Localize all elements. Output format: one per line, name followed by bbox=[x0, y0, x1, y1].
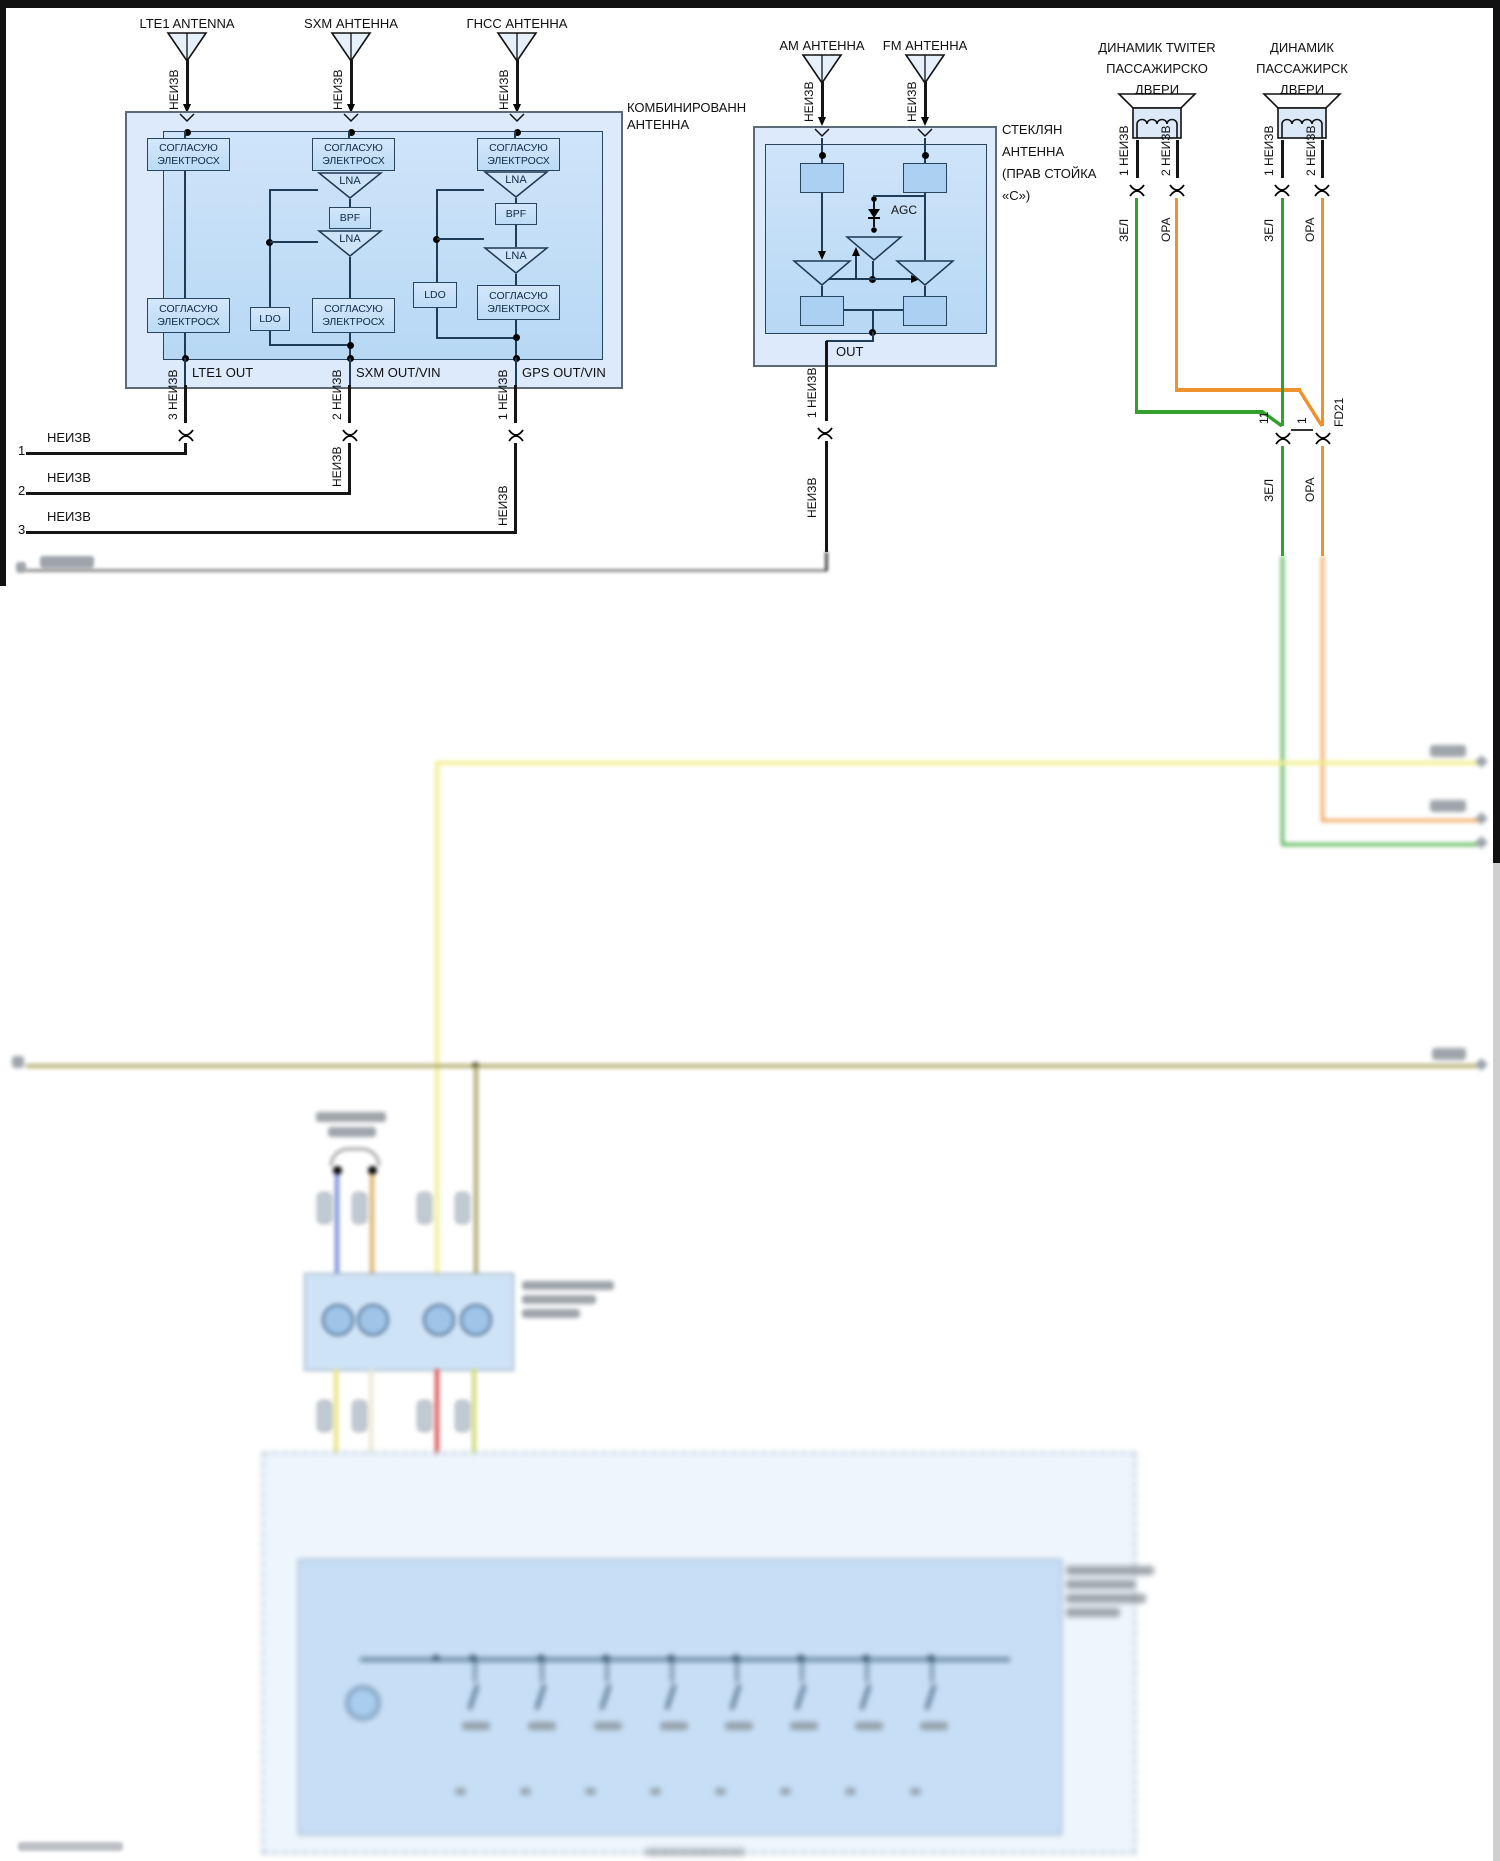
blurred-unit-label bbox=[1066, 1594, 1146, 1603]
blurred-unit-label bbox=[1066, 1608, 1120, 1617]
bottom-unit-inner-box bbox=[298, 1559, 1062, 1835]
internal-bus-line bbox=[360, 1658, 1010, 1661]
connector-row-mark bbox=[845, 1788, 856, 1795]
connector-row-mark bbox=[650, 1788, 661, 1795]
connector-row-mark bbox=[585, 1788, 596, 1795]
switch-stub bbox=[671, 1660, 673, 1682]
blurred-caption bbox=[645, 1848, 745, 1856]
blurred-switch-label bbox=[528, 1722, 556, 1730]
switch-stub bbox=[474, 1660, 476, 1682]
blurred-switch-label bbox=[594, 1722, 622, 1730]
connector-row-mark bbox=[520, 1788, 531, 1795]
blurred-switch-label bbox=[790, 1722, 818, 1730]
blurred-unit-label bbox=[1066, 1566, 1154, 1575]
connector-row-mark bbox=[455, 1788, 466, 1795]
blurred-switch-label bbox=[725, 1722, 753, 1730]
switch-stub bbox=[541, 1660, 543, 1682]
blurred-switch-label bbox=[660, 1722, 688, 1730]
connector-row-mark bbox=[910, 1788, 921, 1795]
switch-stub bbox=[801, 1660, 803, 1682]
blurred-unit-label bbox=[1066, 1580, 1136, 1589]
blurred-switch-label bbox=[462, 1722, 490, 1730]
wiring-diagram-page: LTE1 ANTENNA SXM АНТЕННА ГНСС АНТЕННА НЕ… bbox=[0, 0, 1500, 1861]
switch-stub bbox=[606, 1660, 608, 1682]
switch-stub bbox=[931, 1660, 933, 1682]
junction-dot bbox=[433, 1655, 439, 1661]
blurred-switch-label bbox=[920, 1722, 948, 1730]
internal-circle-symbol bbox=[346, 1686, 380, 1720]
connector-row-mark bbox=[715, 1788, 726, 1795]
blur-band-3 bbox=[0, 0, 1500, 1861]
switch-stub bbox=[736, 1660, 738, 1682]
switch-stub bbox=[866, 1660, 868, 1682]
connector-row-mark bbox=[780, 1788, 791, 1795]
blurred-switch-label bbox=[855, 1722, 883, 1730]
